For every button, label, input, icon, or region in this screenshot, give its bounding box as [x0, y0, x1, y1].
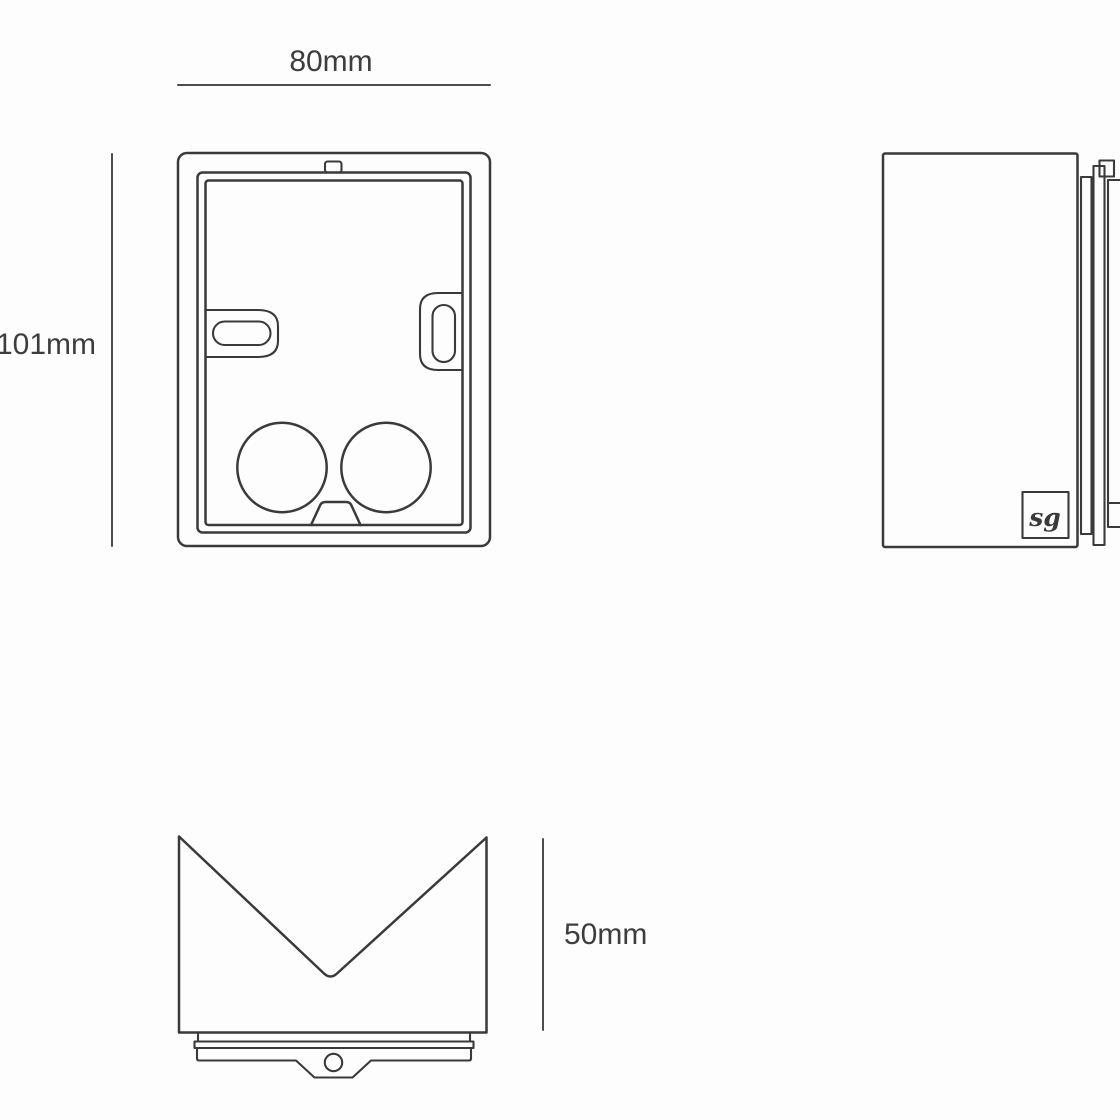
base-step-1 [198, 1033, 470, 1042]
front-view [178, 153, 490, 546]
flange-strip-2 [1094, 166, 1105, 545]
front-outer-frame [178, 153, 490, 546]
flange-strip-1 [1081, 177, 1092, 534]
front-wall-inner-line [206, 181, 463, 526]
dimension-drawing: sg 80mm 101mm [0, 0, 1120, 1120]
flange-top-tab [1100, 161, 1115, 177]
mounting-boss-left [206, 310, 279, 357]
flange-strip-3-clipped [1108, 180, 1120, 527]
screw-slot-right [433, 305, 456, 362]
height-dimension-label: 101mm [0, 328, 96, 361]
front-top-tab [325, 162, 342, 173]
logo-text: sg [1028, 503, 1061, 532]
knockout-circle-left [237, 423, 326, 512]
depth-dimension-label: 50mm [564, 918, 647, 951]
v-profile-body [179, 837, 487, 1033]
width-dimension-label: 80mm [289, 45, 372, 78]
side-view: sg [883, 154, 1120, 548]
side-body [883, 154, 1078, 548]
knockout-circle-right [341, 423, 430, 512]
bottom-view [179, 837, 487, 1078]
cable-notch [311, 502, 361, 525]
dimensions: 80mm 101mm 50mm [0, 45, 647, 1030]
base-plate [197, 1048, 471, 1078]
technical-drawing-canvas: sg 80mm 101mm [0, 0, 1120, 1120]
base-screw-hole [325, 1054, 342, 1071]
screw-slot-left [213, 322, 271, 346]
